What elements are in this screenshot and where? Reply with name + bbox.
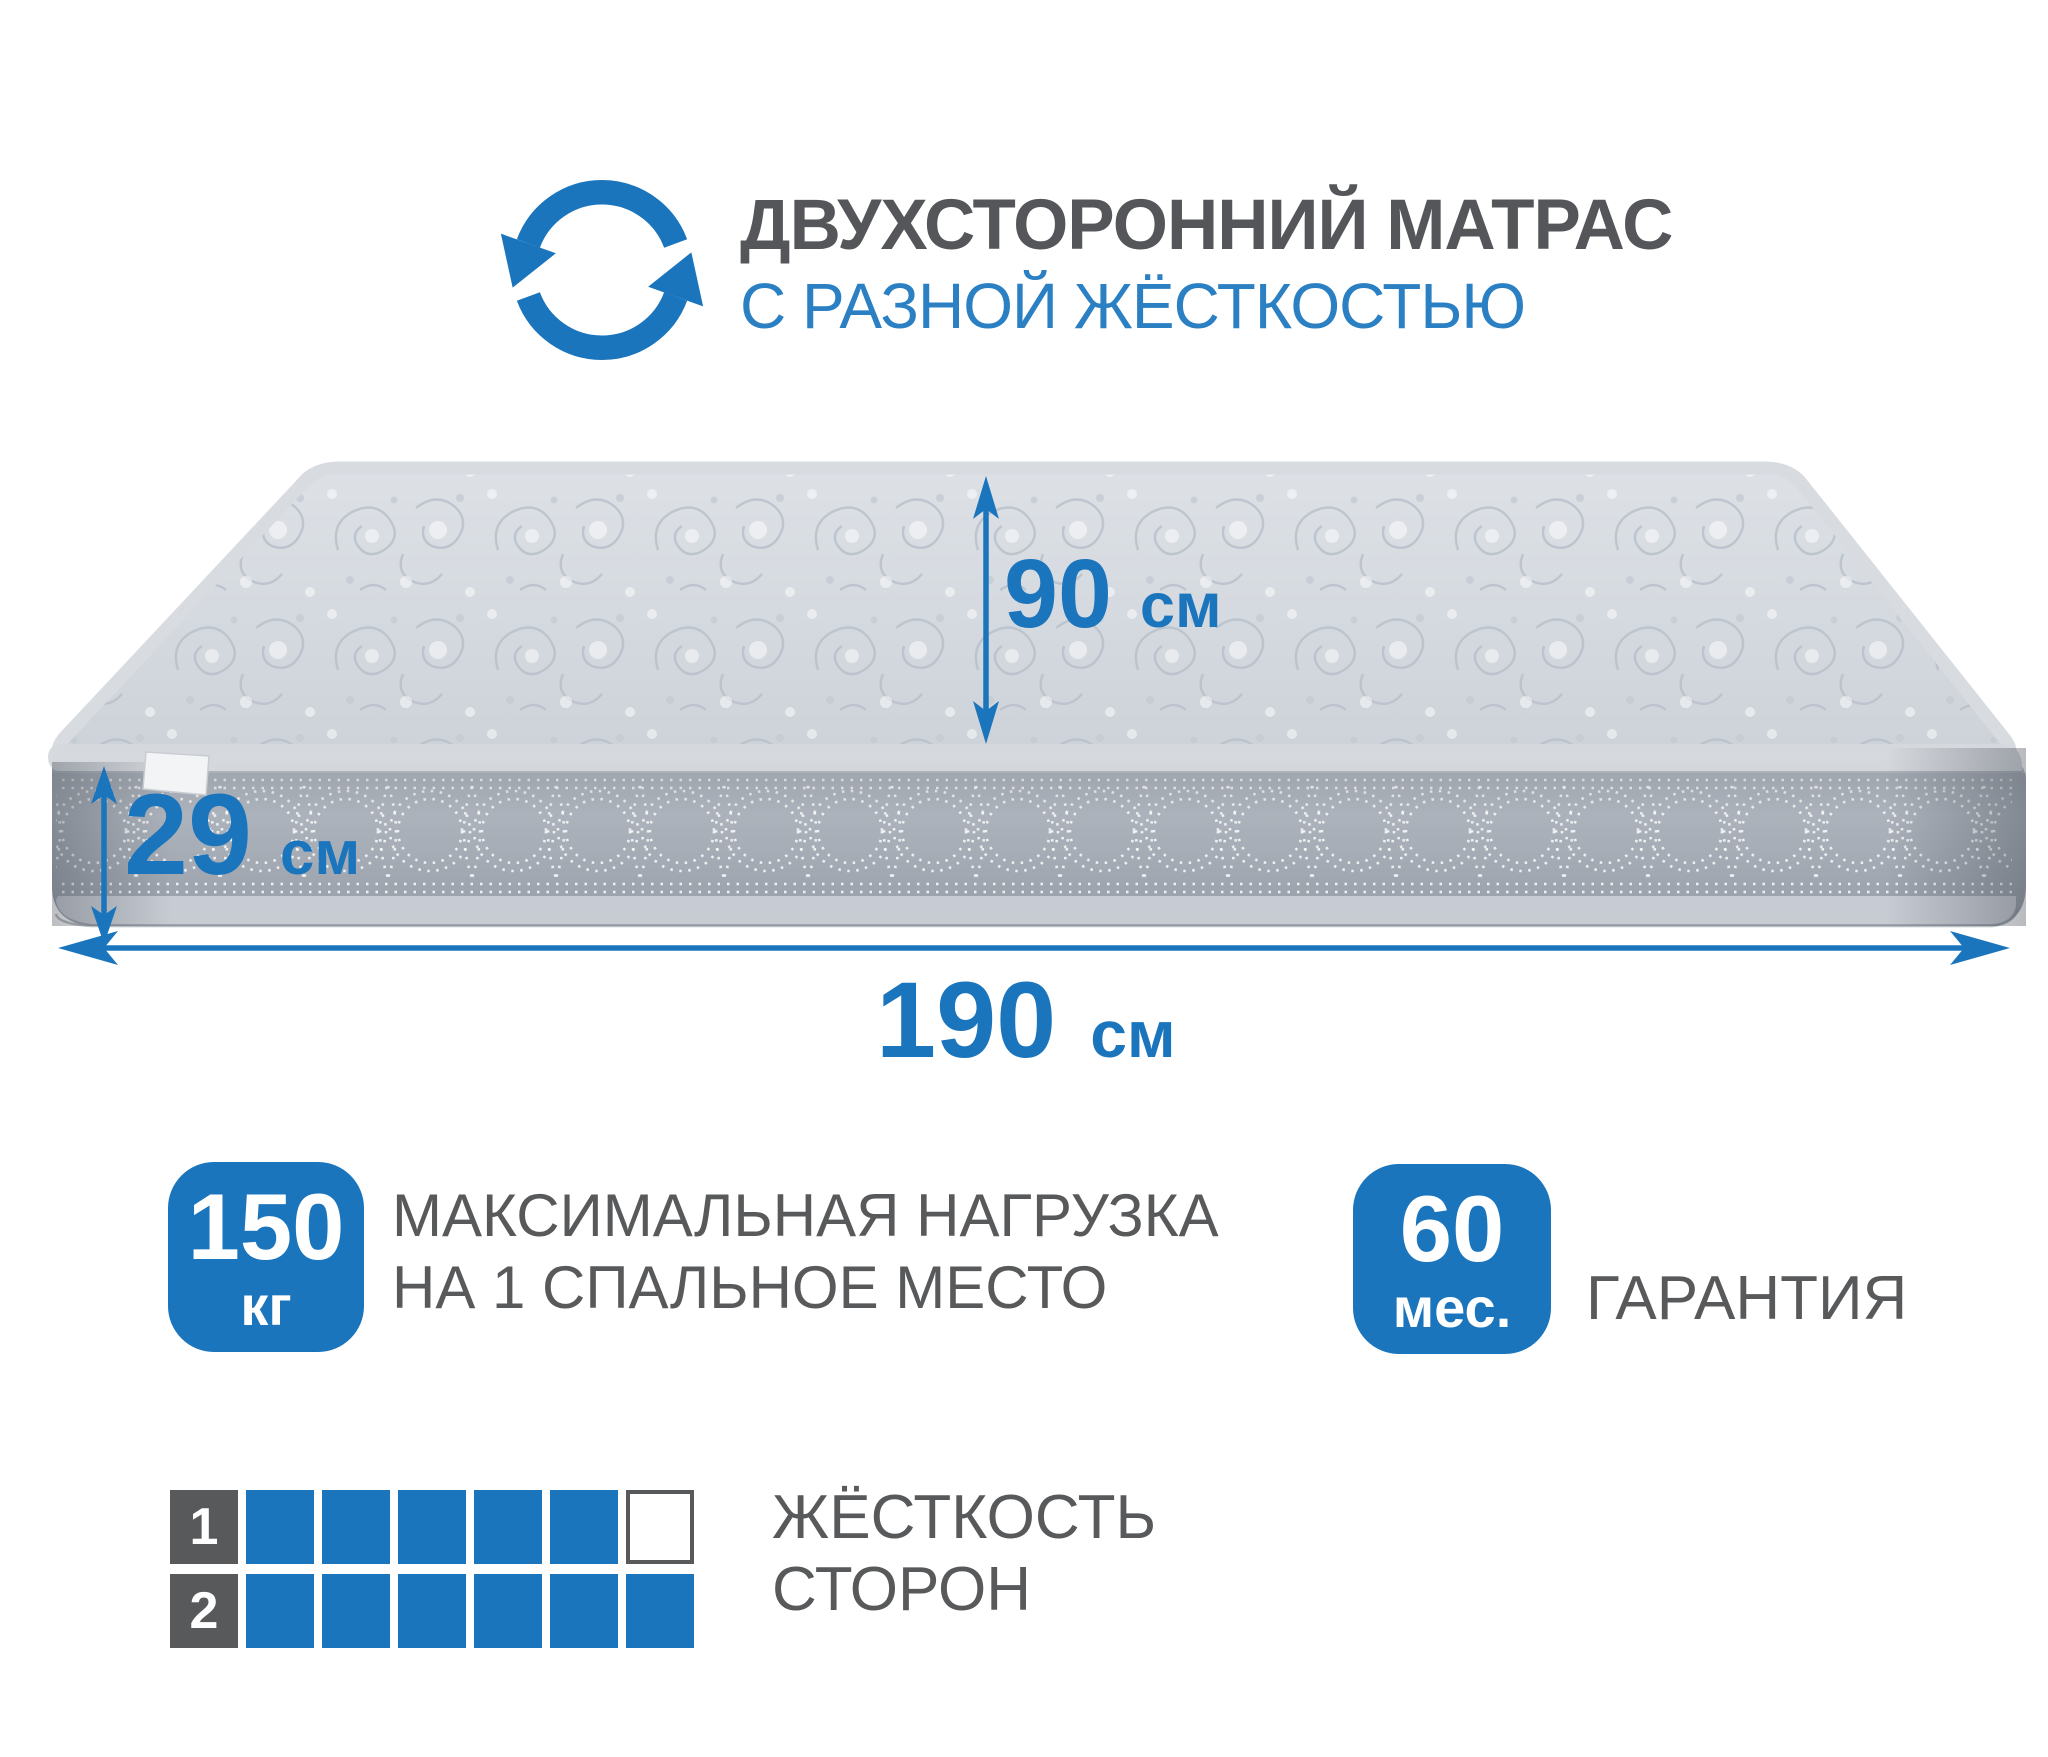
firmness-label: ЖЁСТКОСТЬ СТОРОН — [772, 1482, 1156, 1626]
page-subtitle: С РАЗНОЙ ЖЁСТКОСТЬЮ — [740, 274, 1525, 338]
warranty-value: 60 — [1400, 1182, 1505, 1276]
firmness-cell-filled — [398, 1574, 466, 1648]
width-value: 90 — [1004, 545, 1112, 642]
firmness-cell-filled — [246, 1490, 314, 1564]
length-value: 190 — [876, 966, 1056, 1074]
max-load-value: 150 — [188, 1180, 345, 1274]
firmness-cell-filled — [322, 1574, 390, 1648]
warranty-badge: 60 мес. — [1353, 1164, 1551, 1354]
firmness-side-number: 1 — [170, 1490, 238, 1564]
max-load-unit: кг — [240, 1278, 291, 1334]
height-value: 29 — [124, 778, 252, 893]
length-unit: см — [1090, 996, 1176, 1072]
firmness-cell-filled — [626, 1574, 694, 1648]
max-load-description-line2: НА 1 СПАЛЬНОЕ МЕСТО — [392, 1252, 1219, 1324]
firmness-cell-filled — [474, 1490, 542, 1564]
firmness-rows: 12 — [170, 1490, 694, 1648]
warranty-description: ГАРАНТИЯ — [1586, 1268, 1907, 1330]
firmness-row: 2 — [170, 1574, 694, 1648]
max-load-description-line1: МАКСИМАЛЬНАЯ НАГРУЗКА — [392, 1180, 1219, 1252]
warranty-unit: мес. — [1393, 1280, 1512, 1336]
firmness-cell-filled — [322, 1490, 390, 1564]
firmness-cell-filled — [550, 1574, 618, 1648]
firmness-cell-filled — [474, 1574, 542, 1648]
width-unit: см — [1140, 570, 1222, 642]
firmness-cell-empty — [626, 1490, 694, 1564]
firmness-side-number: 2 — [170, 1574, 238, 1648]
height-unit: см — [280, 818, 360, 889]
infographic-page: ДВУХСТОРОННИЙ МАТРАС С РАЗНОЙ ЖЁСТКОСТЬЮ… — [0, 0, 2048, 1757]
firmness-label-line2: СТОРОН — [772, 1554, 1156, 1626]
max-load-description: МАКСИМАЛЬНАЯ НАГРУЗКА НА 1 СПАЛЬНОЕ МЕСТ… — [392, 1180, 1219, 1324]
firmness-label-line1: ЖЁСТКОСТЬ — [772, 1482, 1156, 1554]
firmness-cell-filled — [550, 1490, 618, 1564]
firmness-row: 1 — [170, 1490, 694, 1564]
firmness-cell-filled — [398, 1490, 466, 1564]
page-title: ДВУХСТОРОННИЙ МАТРАС — [740, 190, 1672, 261]
firmness-cell-filled — [246, 1574, 314, 1648]
height-dimension-label: 29 см — [124, 778, 360, 893]
length-dimension-label: 190 см — [876, 966, 1176, 1074]
rotate-arrows-icon — [494, 168, 710, 372]
max-load-badge: 150 кг — [168, 1162, 364, 1352]
width-dimension-label: 90 см — [1004, 545, 1222, 642]
